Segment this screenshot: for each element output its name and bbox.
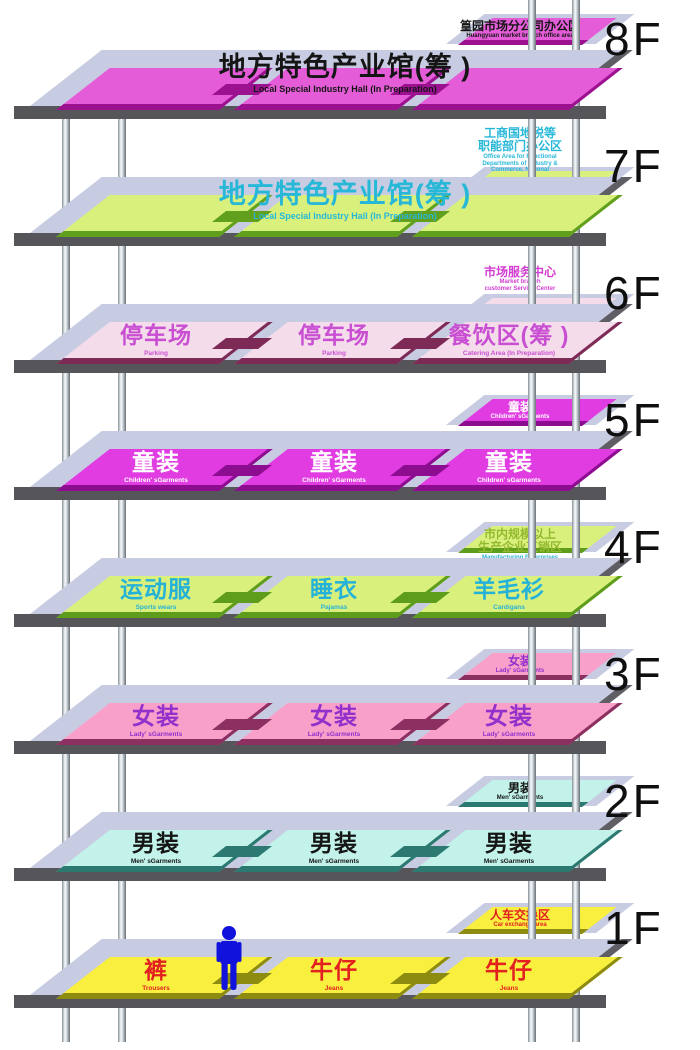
- section-title: 男装: [250, 832, 418, 855]
- section-subtitle: Jeans: [250, 986, 418, 993]
- building-diagram: 篁园市场分公司办公区Huangyuan market branch office…: [0, 0, 700, 1050]
- section-title: 餐饮区(筹 ): [428, 324, 590, 347]
- section-title: 女装: [428, 705, 590, 728]
- section-subtitle: Men' sGarments: [72, 859, 240, 866]
- section-label: 牛仔Jeans: [250, 959, 418, 993]
- section-title: 牛仔: [428, 959, 590, 982]
- section-subtitle: Lady' sGarments: [72, 732, 240, 739]
- section-subtitle: Catering Area (In Preparation): [428, 351, 590, 358]
- section-subtitle: Sports wears: [72, 605, 240, 612]
- floor-number: 4F: [604, 520, 664, 574]
- floor-6f: 市场服务中心Market branchcustomer Service Cent…: [0, 254, 700, 399]
- floor-number: 3F: [604, 647, 664, 701]
- floor-number: 5F: [604, 393, 664, 447]
- floor-2f: 男装Men' sGarments男装Men' sGarments男装Men' s…: [0, 762, 700, 907]
- section-title: 睡衣: [250, 578, 418, 601]
- floor-number: 2F: [604, 774, 664, 828]
- section-title: 男装: [72, 832, 240, 855]
- section-title: 男装: [428, 832, 590, 855]
- section-subtitle: Cardigans: [428, 605, 590, 612]
- section-subtitle: Lady' sGarments: [250, 732, 418, 739]
- section-label: 男装Men' sGarments: [250, 832, 418, 866]
- section-title: 女装: [72, 705, 240, 728]
- floor-number: 8F: [604, 12, 664, 66]
- section-label: 女装Lady' sGarments: [72, 705, 240, 739]
- section-subtitle: Parking: [72, 351, 240, 358]
- person-icon: [212, 925, 246, 996]
- floor-5f: 童装Children' sGarments童装Children' sGarmen…: [0, 381, 700, 526]
- section-title: 童装: [72, 451, 240, 474]
- floor-3f: 女装Lady' sGarments女装Lady' sGarments女装Lady…: [0, 635, 700, 780]
- section-subtitle: Jeans: [428, 986, 590, 993]
- section-subtitle: Pajamas: [250, 605, 418, 612]
- hall-banner-subtitle: Local Special Industry Hall (In Preparat…: [120, 85, 570, 94]
- floor-4f: 市内规模以上生产企业直销区Manufacturing EnterprisesDi…: [0, 508, 700, 653]
- section-subtitle: Parking: [250, 351, 418, 358]
- section-label: 睡衣Pajamas: [250, 578, 418, 612]
- section-title: 牛仔: [250, 959, 418, 982]
- floor-1f: 人车交换区Car exchange area裤Trousers牛仔Jeans牛仔…: [0, 889, 700, 1034]
- section-subtitle: Children' sGarments: [428, 478, 590, 485]
- section-label: 羊毛衫Cardigans: [428, 578, 590, 612]
- support-pole: [528, 0, 536, 1042]
- floor-8f: 篁园市场分公司办公区Huangyuan market branch office…: [0, 0, 700, 145]
- floor-7f: 工商国地税等职能部门办公区Office Area for FunctionalD…: [0, 127, 700, 272]
- hall-banner: 地方特色产业馆(筹 )Local Special Industry Hall (…: [120, 181, 570, 221]
- section-label: 男装Men' sGarments: [72, 832, 240, 866]
- section-subtitle: Men' sGarments: [428, 859, 590, 866]
- section-title: 停车场: [250, 324, 418, 347]
- section-title: 羊毛衫: [428, 578, 590, 601]
- hall-banner: 地方特色产业馆(筹 )Local Special Industry Hall (…: [120, 54, 570, 94]
- support-pole: [62, 118, 70, 1042]
- support-pole: [572, 0, 580, 1042]
- section-label: 运动服Sports wears: [72, 578, 240, 612]
- section-label: 女装Lady' sGarments: [428, 705, 590, 739]
- section-label: 女装Lady' sGarments: [250, 705, 418, 739]
- hall-banner-title: 地方特色产业馆(筹 ): [120, 181, 570, 208]
- section-label: 男装Men' sGarments: [428, 832, 590, 866]
- section-subtitle: Men' sGarments: [250, 859, 418, 866]
- hall-banner-title: 地方特色产业馆(筹 ): [120, 54, 570, 81]
- section-title: 童装: [428, 451, 590, 474]
- section-label: 牛仔Jeans: [428, 959, 590, 993]
- section-label: 童装Children' sGarments: [250, 451, 418, 485]
- section-subtitle: Children' sGarments: [250, 478, 418, 485]
- section-title: 运动服: [72, 578, 240, 601]
- section-label: 童装Children' sGarments: [428, 451, 590, 485]
- section-label: 餐饮区(筹 )Catering Area (In Preparation): [428, 324, 590, 358]
- floor-number: 7F: [604, 139, 664, 193]
- section-title: 童装: [250, 451, 418, 474]
- hall-banner-subtitle: Local Special Industry Hall (In Preparat…: [120, 212, 570, 221]
- section-subtitle: Children' sGarments: [72, 478, 240, 485]
- section-title: 停车场: [72, 324, 240, 347]
- section-label: 童装Children' sGarments: [72, 451, 240, 485]
- section-subtitle: Lady' sGarments: [428, 732, 590, 739]
- floor-number: 6F: [604, 266, 664, 320]
- section-label: 停车场Parking: [250, 324, 418, 358]
- section-title: 女装: [250, 705, 418, 728]
- section-label: 停车场Parking: [72, 324, 240, 358]
- floor-number: 1F: [604, 901, 664, 955]
